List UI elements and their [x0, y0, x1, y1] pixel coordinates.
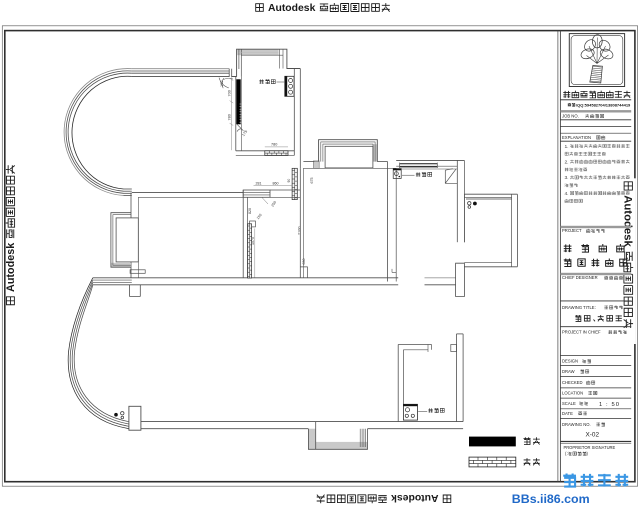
svg-text:CHECKED: CHECKED: [562, 380, 582, 385]
svg-text:SCALE: SCALE: [562, 401, 576, 406]
svg-text:EXPLANATION: EXPLANATION: [562, 135, 591, 140]
svg-text:/QQ:594582704/13808744419: /QQ:594582704/13808744419: [576, 102, 631, 107]
svg-text:X-02: X-02: [586, 431, 600, 438]
svg-text:700: 700: [228, 90, 232, 96]
svg-text:.: .: [567, 160, 568, 165]
svg-text:675: 675: [310, 178, 314, 184]
svg-text:JOB NO.: JOB NO.: [562, 114, 579, 119]
svg-text:DATE: DATE: [562, 411, 573, 416]
svg-text:2100: 2100: [298, 227, 302, 235]
svg-text:PROJECT: PROJECT: [562, 228, 582, 233]
svg-text:DRAWING NO.: DRAWING NO.: [562, 422, 591, 427]
svg-text:1 : 50: 1 : 50: [599, 402, 620, 408]
svg-text:Autodesk: Autodesk: [268, 3, 316, 14]
svg-text:.: .: [567, 192, 568, 197]
svg-text:BBs.ii86.com: BBs.ii86.com: [512, 492, 590, 506]
svg-text:.: .: [567, 176, 568, 181]
svg-text:281: 281: [256, 181, 262, 185]
svg-text:DESIGN: DESIGN: [562, 359, 578, 364]
svg-text:820: 820: [248, 208, 252, 214]
svg-text:860: 860: [273, 181, 279, 185]
svg-text:.: .: [567, 145, 568, 150]
svg-text:780: 780: [271, 143, 277, 147]
svg-text:630: 630: [302, 259, 306, 265]
svg-text:Autodesk: Autodesk: [5, 242, 17, 292]
svg-text:PROPRIETOR SIGNATURE: PROPRIETOR SIGNATURE: [564, 445, 616, 450]
svg-text:LOCATION: LOCATION: [562, 390, 583, 395]
svg-text:DRAW: DRAW: [562, 369, 575, 374]
svg-text:100: 100: [220, 81, 224, 87]
svg-text:PROJECT IN CHIEF: PROJECT IN CHIEF: [562, 329, 601, 334]
svg-text:DRAWING TITLE:: DRAWING TITLE:: [562, 305, 596, 310]
svg-text:CHIEF DESIGNER: CHIEF DESIGNER: [562, 275, 598, 280]
svg-text:780: 780: [228, 114, 232, 120]
svg-text:90: 90: [287, 179, 291, 183]
svg-text:Autodesk: Autodesk: [621, 195, 633, 247]
svg-text:Autodesk: Autodesk: [391, 492, 439, 503]
